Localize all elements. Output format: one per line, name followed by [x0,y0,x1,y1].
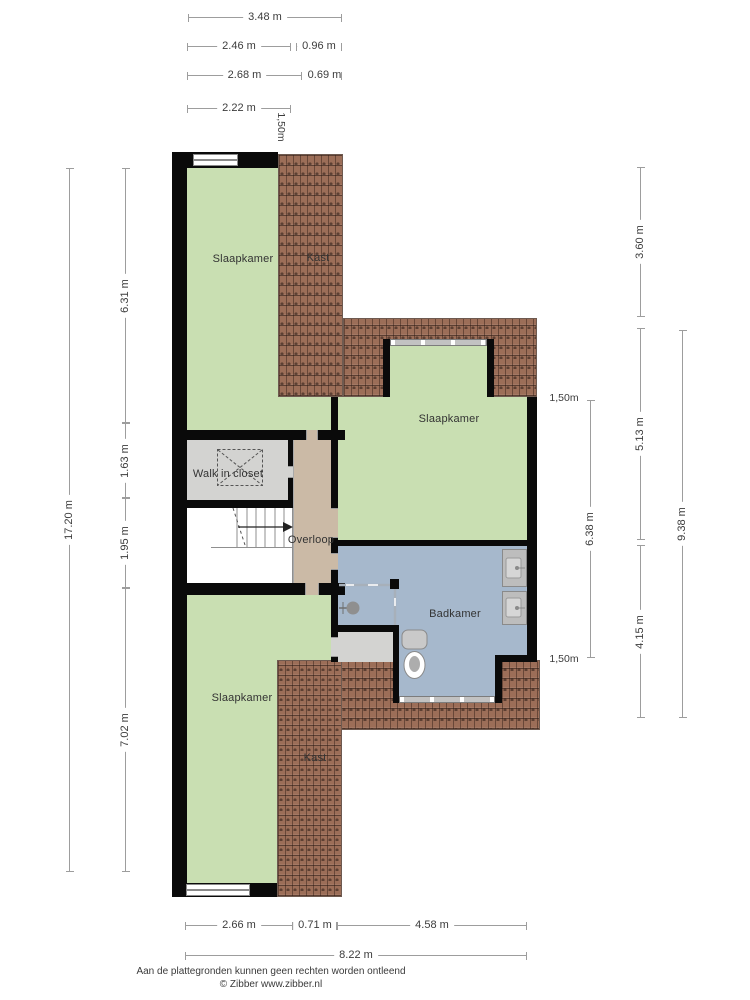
wall-stairs-bottom [172,583,345,595]
room-label-kast-bottom: Kast [304,752,327,764]
window-slaapkamer-bottom [186,884,250,896]
dimension-left-631: 6.31 m [125,168,126,423]
door-opening-slaapkamer-bottom [305,583,319,595]
dimension-top-348: 3.48 m [188,17,342,18]
dimension-bottom-266: 2.66 m [185,925,293,926]
room-label-slaapkamer-bottom: Slaapkamer [212,692,273,704]
door-opening-badkamer [331,553,338,570]
room-floor-overloop [293,440,331,583]
dimension-bottom-071: 0.71 m [293,925,337,926]
headroom-label-top: 1,50m [275,112,287,141]
wall-core-v2 [331,440,338,508]
dimension-right-513: 5.13 m [640,328,641,540]
wall-dormer-top-left-stub [383,339,390,397]
wall-outer-right [527,397,537,662]
staircase [187,508,293,583]
disclaimer-text: Aan de plattegronden kunnen geen rechten… [0,966,542,977]
door-opening-walk-in-closet [288,466,293,478]
room-label-overloop: Overloop [288,534,334,546]
room-label-slaapkamer-top: Slaapkamer [213,253,274,265]
window-dormer-slaapkamer-mid [390,339,487,346]
dimension-right-638: 6.38 m [590,400,591,658]
washbasin-icon [502,549,527,587]
dimension-left-702: 7.02 m [125,588,126,872]
wall-dormer-bottom-right-stub [495,655,502,703]
wall-core-v1 [331,397,338,430]
wall-dormer-bottom-left-stub [393,632,399,703]
wall-slaapkamer-badkamer [331,540,527,546]
dimension-top-069: 0.69 m [307,75,342,76]
dimension-top-096: 0.96 m [296,46,342,47]
dimension-top-268: 2.68 m [187,75,302,76]
roof-area-kast-top [278,154,343,397]
dimension-top-246: 2.46 m [187,46,291,47]
door-opening-closet-grey [331,637,338,657]
wall-wic-bottom [187,500,293,508]
dimension-right-360: 3.60 m [640,167,641,317]
door-opening-overloop-top [306,430,318,440]
wall-core-v6 [331,657,338,662]
room-floor-slaapkamer-mid-dormer [390,346,487,397]
washbasin-icon [502,591,527,625]
room-label-walk-in-closet: Walk in closet [193,468,263,480]
window-dormer-badkamer [399,696,495,703]
room-label-slaapkamer-mid: Slaapkamer [419,413,480,425]
dimension-left-195: 1.95 m [125,498,126,588]
dimension-top-222: 2.22 m [187,108,291,109]
wall-wic-top [187,430,345,440]
roof-area-kast-bottom [277,660,342,897]
dimension-left-163: 1.63 m [125,423,126,498]
wall-dormer-top-right-stub [487,339,494,397]
dimension-right-415: 4.15 m [640,545,641,718]
room-label-badkamer: Badkamer [429,608,481,620]
headroom-label-right-top: 1,50m [549,392,578,404]
wall-core-v4 [331,570,338,583]
dimension-left-1720: 17.20 m [69,168,70,872]
shower-icon [338,578,400,628]
room-floor-closet-grey [337,632,393,662]
dimension-bottom-822: 8.22 m [185,955,527,956]
copyright-text: © Zibber www.zibber.nl [0,979,542,990]
wall-badkamer-bottom-right [495,655,537,662]
dimension-right-938: 9.38 m [682,330,683,718]
wall-outer-left [172,152,187,897]
floorplan-canvas: Slaapkamer Kast Walk in closet Overloop … [0,0,750,1000]
window-slaapkamer-top [193,154,238,166]
headroom-label-right-bottom: 1,50m [549,653,578,665]
dimension-bottom-458: 4.58 m [337,925,527,926]
toilet-icon [401,629,429,681]
room-label-kast-top: Kast [307,252,330,264]
